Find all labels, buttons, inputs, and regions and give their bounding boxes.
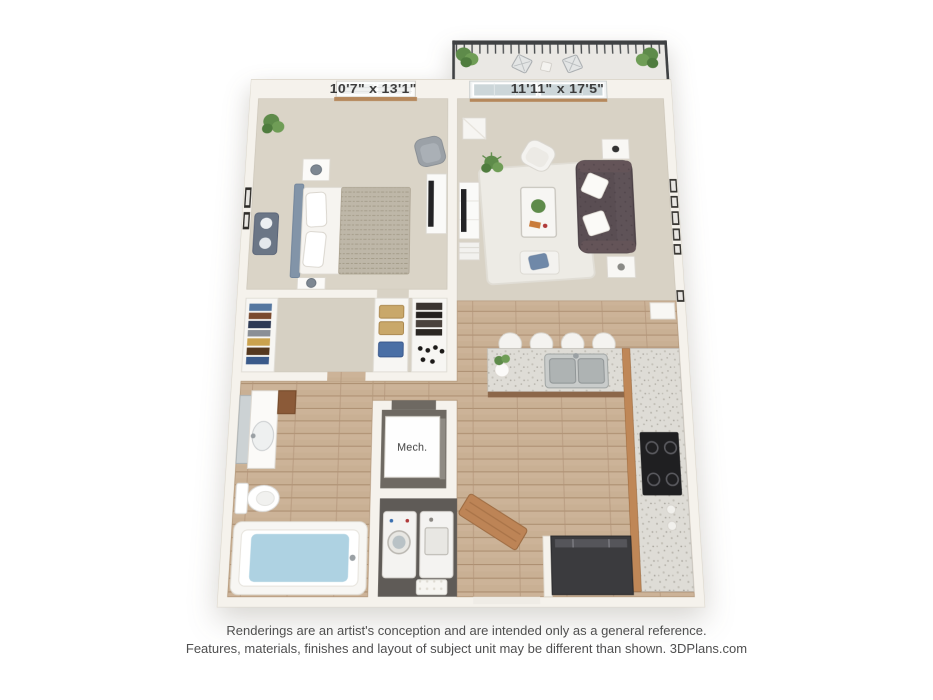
door-threshold <box>470 99 607 102</box>
bedroom-tv <box>428 181 434 227</box>
disclaimer-line-1: Renderings are an artist's conception an… <box>0 622 933 640</box>
bed <box>290 184 410 278</box>
counter-plant <box>494 355 510 377</box>
bathroom-cabinet <box>278 391 296 414</box>
tv-console <box>459 182 479 260</box>
cube-table <box>463 118 486 139</box>
cabinet-base-shadow <box>488 392 632 398</box>
living-room-dimensions-label: 11'11" x 17'5" <box>511 81 605 96</box>
bed-pillow <box>306 192 327 227</box>
bedroom-dresser-tv <box>426 174 446 234</box>
cabinet-knob <box>667 521 676 530</box>
bathroom-vanity <box>247 391 278 469</box>
kitchen-sink <box>545 353 609 388</box>
bathtub <box>230 522 368 595</box>
side-table <box>602 139 630 159</box>
bath-mat <box>416 580 446 595</box>
closet-to-bath-opening <box>327 372 366 381</box>
disclaimer-line-2: Features, materials, finishes and layout… <box>0 640 933 658</box>
closet-baskets <box>378 305 404 356</box>
living-tv <box>461 189 466 232</box>
sofa <box>576 161 636 253</box>
side-table <box>607 256 636 277</box>
floor-plan-3d: Mech. <box>217 33 706 608</box>
washer <box>382 512 416 578</box>
balcony-table <box>540 61 551 71</box>
ottoman-bench <box>520 251 559 274</box>
disclaimer: Renderings are an artist's conception an… <box>0 622 933 659</box>
window-sill <box>334 97 417 101</box>
entry-door-threshold <box>473 597 540 604</box>
nightstand <box>302 159 330 181</box>
balcony <box>452 40 669 81</box>
bedroom-door-opening <box>377 289 409 298</box>
media-stack <box>459 242 479 260</box>
cabinet-knob <box>666 505 675 514</box>
bathtub-water <box>249 534 349 582</box>
bed-pillow <box>302 231 326 267</box>
mechanical-closet: Mech. <box>384 417 445 480</box>
mech-door-opening <box>392 400 436 410</box>
floor-plan-svg: Mech. <box>217 33 706 608</box>
dryer <box>420 512 453 578</box>
nightstand <box>297 278 325 290</box>
bed-blanket <box>339 187 411 274</box>
cooktop <box>640 432 683 495</box>
bedroom-bench <box>253 213 279 255</box>
blue-pillow <box>528 253 549 270</box>
refrigerator <box>551 536 634 595</box>
mech-label: Mech. <box>397 442 427 454</box>
bedroom-dimensions-label: 10'7" x 13'1" <box>329 81 416 96</box>
coffee-table <box>521 187 557 237</box>
